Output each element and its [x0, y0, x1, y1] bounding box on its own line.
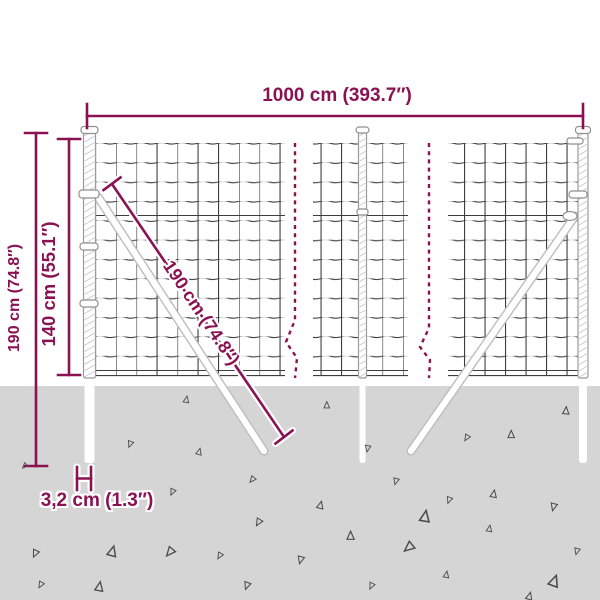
break-line-right: [420, 143, 430, 378]
dimension-post-thickness: [77, 467, 91, 490]
brace-left-clamp: [79, 190, 99, 198]
post-left-cap: [81, 127, 98, 134]
break-line-left: [286, 143, 297, 378]
post-middle: [356, 127, 369, 463]
dimension-total-length: [87, 104, 583, 128]
dimension-label-mesh-height: 140 cm (55.1″): [38, 221, 60, 346]
dimension-label-total-height: 190 cm (74.8″): [6, 244, 24, 352]
fence-mesh: [95, 143, 579, 376]
mesh-section-right: [448, 143, 579, 376]
post-middle-cap: [356, 127, 369, 133]
post-left: [79, 127, 99, 464]
dimension-mesh-height: [58, 139, 80, 375]
dimension-label-post-thickness: 3,2 cm (1.3″): [41, 490, 154, 512]
fence-dimension-diagram: 1000 cm (393.7″) 190 cm (74.8″) 140 cm (…: [0, 0, 600, 600]
brace-right-clamp: [563, 212, 577, 221]
dimension-label-total-length: 1000 cm (393.7″): [262, 85, 412, 107]
